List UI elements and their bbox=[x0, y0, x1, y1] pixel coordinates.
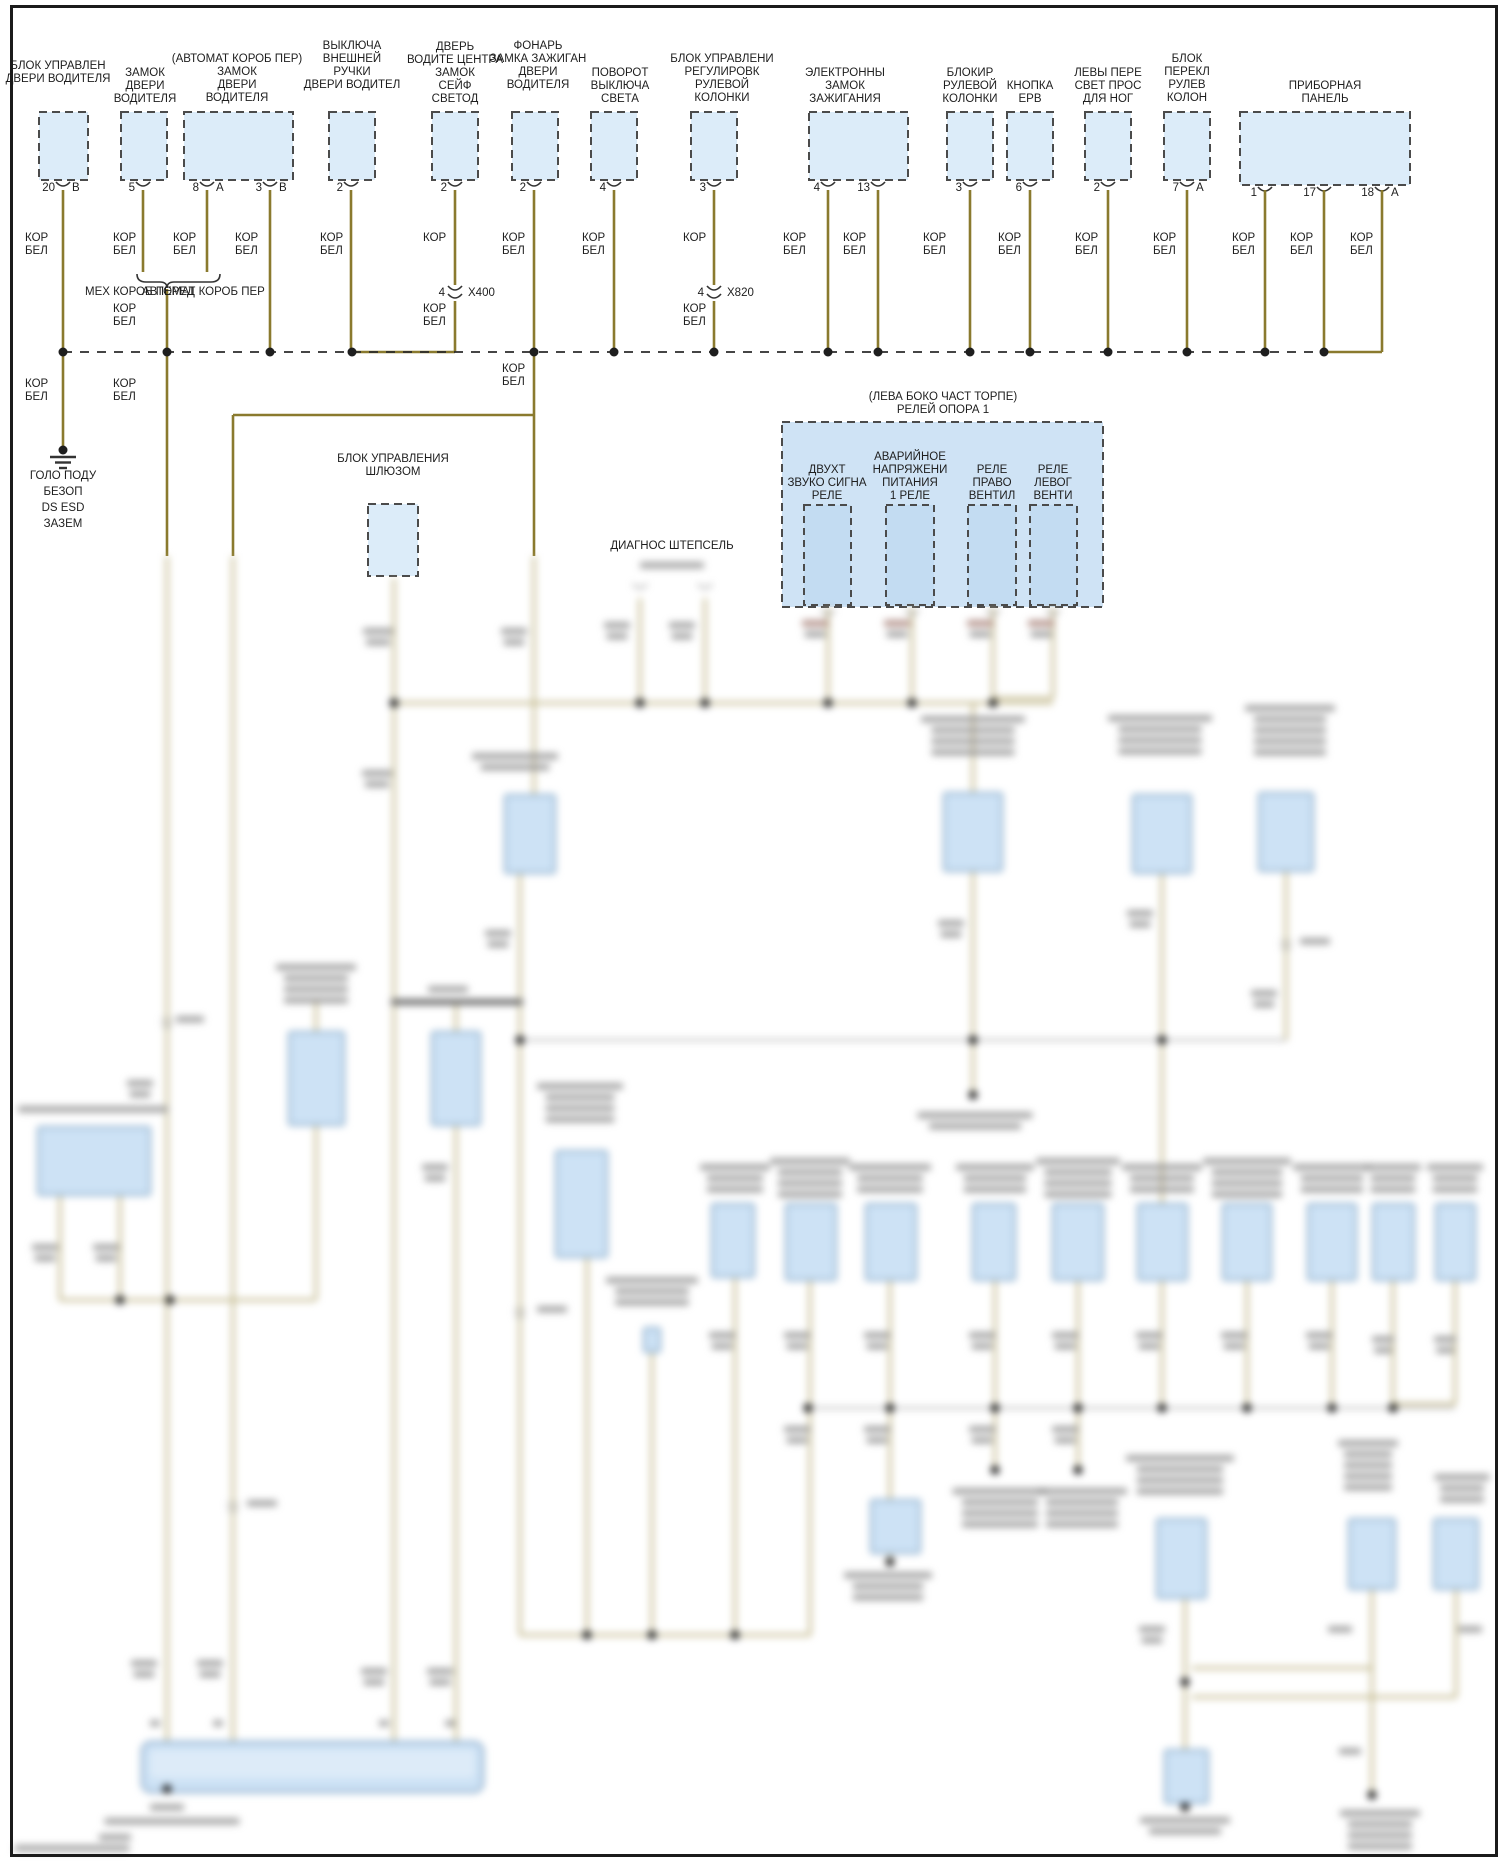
wire-color-label: КОР БЕЛ bbox=[25, 378, 48, 404]
blurred-text-blob bbox=[501, 628, 527, 635]
block-label-ignition-lock-lamp: ФОНАРЬ ЗАМКА ЗАЖИГАН ДВЕРИ ВОДИТЕЛЯ bbox=[490, 40, 587, 92]
pin-number: 1 bbox=[1251, 187, 1257, 200]
blurred-text-blob bbox=[1044, 1169, 1111, 1176]
blurred-text-blob bbox=[1458, 1626, 1482, 1633]
blurred-text-blob bbox=[1137, 1477, 1223, 1484]
blurred-text-blob bbox=[1427, 1164, 1483, 1171]
wire-color-label: КОР БЕЛ bbox=[423, 303, 446, 329]
blurred-text-blob bbox=[969, 1426, 995, 1433]
blurred-text-blob bbox=[938, 920, 964, 927]
blurred-text-blob bbox=[1309, 1343, 1330, 1350]
blurred-text-blob bbox=[770, 1158, 850, 1165]
blurred-component-box bbox=[1157, 1519, 1206, 1598]
blurred-text-blob bbox=[1293, 1164, 1371, 1171]
blurred-text-blob bbox=[1338, 1440, 1398, 1447]
blurred-text-blob bbox=[964, 1186, 1026, 1193]
blurred-text-blob bbox=[197, 1660, 223, 1667]
blurred-text-blob bbox=[1254, 716, 1326, 723]
blurred-component-box bbox=[505, 795, 555, 873]
pin-letter: A bbox=[1391, 187, 1399, 200]
blurred-text-blob bbox=[784, 1426, 810, 1433]
blurred-text-blob bbox=[546, 1105, 615, 1112]
pin-letter: B bbox=[72, 182, 80, 195]
blurred-text-blob bbox=[853, 1583, 923, 1590]
blurred-text-blob bbox=[1140, 1817, 1230, 1824]
relay-label-right-fan-relay: РЕЛЕ ПРАВО ВЕНТИЛ bbox=[969, 464, 1015, 503]
pin-letter: A bbox=[216, 182, 224, 195]
blurred-component-box bbox=[1308, 1204, 1356, 1280]
blurred-text-blob bbox=[134, 1671, 155, 1678]
pin-number: 8 bbox=[193, 182, 199, 195]
blurred-text-blob bbox=[1344, 1451, 1392, 1458]
blurred-text-blob bbox=[276, 964, 356, 971]
blurred-text-blob bbox=[1212, 1169, 1282, 1176]
blurred-text-blob bbox=[363, 628, 393, 635]
blurred-text-blob bbox=[707, 1175, 763, 1182]
blurred-text-blob bbox=[1372, 1336, 1394, 1343]
wire-color-label: КОР БЕЛ bbox=[1232, 232, 1255, 258]
block-label-steering-column-adjust-unit: БЛОК УПРАВЛЕНИ РЕГУЛИРОВК РУЛЕВОЙ КОЛОНК… bbox=[670, 53, 773, 105]
blurred-text-blob bbox=[1130, 921, 1151, 928]
blurred-text-blob bbox=[1118, 748, 1201, 755]
blurred-text-blob bbox=[1031, 631, 1052, 638]
blurred-text-blob bbox=[669, 622, 695, 629]
blurred-text-blob bbox=[615, 1288, 689, 1295]
wire-color-label: КОР bbox=[683, 232, 706, 245]
pin-number: 2 bbox=[441, 182, 447, 195]
blurred-text-blob bbox=[972, 1437, 993, 1444]
blurred-text-blob bbox=[931, 738, 1014, 745]
blurred-component-box bbox=[1133, 795, 1191, 873]
blurred-text-blob bbox=[1348, 1843, 1412, 1850]
blurred-text-blob bbox=[1224, 1343, 1245, 1350]
blurred-text-blob bbox=[1130, 1175, 1194, 1182]
blurred-text-blob bbox=[931, 727, 1014, 734]
wire-color-label: КОР БЕЛ bbox=[235, 232, 258, 258]
pin-number: 5 bbox=[129, 182, 135, 195]
blurred-text-blob bbox=[200, 1671, 221, 1678]
blurred-text-blob bbox=[150, 1720, 160, 1727]
blurred-text-blob bbox=[967, 620, 993, 627]
blurred-text-blob bbox=[1365, 1164, 1421, 1171]
blurred-text-blob bbox=[802, 620, 828, 627]
blurred-text-blob bbox=[1221, 1332, 1247, 1339]
blurred-component-box bbox=[1434, 1519, 1478, 1589]
block-label-electronic-ignition-lock: ЭЛЕКТРОННЫ ЗАМОК ЗАЖИГАНИЯ bbox=[805, 67, 885, 106]
blurred-text-blob bbox=[131, 1660, 157, 1667]
blurred-text-blob bbox=[604, 622, 630, 629]
blurred-text-blob bbox=[1254, 1001, 1275, 1008]
wire-color-label: КОР БЕЛ bbox=[113, 303, 136, 329]
blurred-text-blob bbox=[361, 1668, 387, 1675]
wire-color-label: КОР БЕЛ bbox=[502, 363, 525, 389]
pin-number: 20 bbox=[42, 182, 55, 195]
blurred-text-blob bbox=[1108, 715, 1212, 722]
blurred-text-blob bbox=[1301, 1175, 1363, 1182]
wire-color-label: КОР БЕЛ bbox=[113, 378, 136, 404]
blurred-text-blob bbox=[1044, 1191, 1111, 1198]
blurred-component-box bbox=[38, 1127, 150, 1195]
blurred-text-blob bbox=[1052, 1332, 1078, 1339]
connector-pin: 4 bbox=[439, 287, 445, 300]
blurred-text-blob bbox=[1440, 1485, 1484, 1492]
blurred-component-box bbox=[1053, 1204, 1103, 1280]
blurred-component-box bbox=[1165, 1750, 1208, 1803]
pin-letter: B bbox=[279, 182, 287, 195]
blurred-text-blob bbox=[430, 1679, 451, 1686]
blurred-text-blob bbox=[844, 1572, 932, 1579]
wire-color-label: КОР БЕЛ bbox=[1350, 232, 1373, 258]
blurred-text-blob bbox=[504, 639, 525, 646]
blurred-component-box bbox=[871, 1500, 920, 1553]
blurred-text-blob bbox=[481, 764, 550, 771]
block-label-driver-door-lock: ЗАМОК ДВЕРИ ВОДИТЕЛЯ bbox=[114, 67, 177, 106]
pin-letter: A bbox=[1196, 182, 1204, 195]
wire-color-label: КОР БЕЛ bbox=[582, 232, 605, 258]
blurred-text-blob bbox=[1142, 1637, 1163, 1644]
blurred-component-box bbox=[556, 1151, 607, 1257]
wire-color-label: КОР БЕЛ bbox=[1290, 232, 1313, 258]
diagnostic-plug-label: ДИАГНОС ШТЕПСЕЛЬ bbox=[610, 540, 733, 553]
blurred-text-blob bbox=[1212, 1180, 1282, 1187]
relay-label-left-fan-relay: РЕЛЕ ЛЕВОГ ВЕНТИ bbox=[1034, 464, 1073, 503]
blurred-text-blob bbox=[422, 1164, 448, 1171]
blurred-text-blob bbox=[1036, 1158, 1120, 1165]
blurred-text-blob bbox=[127, 1080, 153, 1087]
blurred-text-blob bbox=[1340, 1810, 1420, 1817]
blurred-component-box bbox=[712, 1204, 754, 1277]
blurred-text-blob bbox=[1434, 1336, 1456, 1343]
block-label-left-front-footwell-light: ЛЕВЫ ПЕРЕ СВЕТ ПРОС ДЛЯ НОГ bbox=[1074, 67, 1142, 106]
blurred-text-blob bbox=[1149, 1828, 1221, 1835]
wiring-diagram-page: БЛОК УПРАВЛЕН ДВЕРИ ВОДИТЕЛЯ20BЗАМОК ДВЕ… bbox=[0, 0, 1500, 1861]
blurred-text-blob bbox=[1440, 1496, 1484, 1503]
block-label-instrument-panel: ПРИБОРНАЯ ПАНЕЛЬ bbox=[1289, 80, 1362, 106]
blurred-text-blob bbox=[867, 1437, 888, 1444]
gateway-label: БЛОК УПРАВЛЕНИЯ ШЛЮЗОМ bbox=[337, 453, 449, 479]
blurred-text-blob bbox=[546, 1094, 615, 1101]
blurred-text-blob bbox=[1371, 1186, 1416, 1193]
blurred-text-blob bbox=[428, 986, 468, 993]
blurred-text-blob bbox=[864, 1332, 890, 1339]
blurred-text-blob bbox=[1436, 1347, 1454, 1354]
pin-number: 4 bbox=[600, 182, 606, 195]
blurred-text-blob bbox=[365, 781, 389, 788]
blurred-text-blob bbox=[1374, 1347, 1392, 1354]
blurred-text-blob bbox=[176, 1016, 204, 1023]
blurred-text-blob bbox=[931, 749, 1014, 756]
wire-color-label: КОР БЕЛ bbox=[843, 232, 866, 258]
blurred-text-blob bbox=[1254, 749, 1326, 756]
block-label-steering-column-switch-unit: БЛОК ПЕРЕКЛ РУЛЕВ КОЛОН bbox=[1164, 53, 1210, 105]
blurred-text-blob bbox=[1052, 1426, 1078, 1433]
blurred-text-blob bbox=[778, 1191, 842, 1198]
blurred-text-blob bbox=[1046, 1521, 1118, 1528]
blurred-text-blob bbox=[1371, 1175, 1416, 1182]
blurred-text-blob bbox=[1118, 737, 1201, 744]
blurred-text-blob bbox=[853, 1594, 923, 1601]
blurred-text-blob bbox=[857, 1186, 923, 1193]
blurred-text-blob bbox=[130, 1091, 151, 1098]
blurred-text-blob bbox=[96, 1255, 117, 1262]
relay-panel-title: (ЛЕВА БОКО ЧАСТ ТОРПЕ) РЕЛЕЙ ОПОРА 1 bbox=[869, 391, 1017, 417]
blurred-component-box bbox=[1259, 793, 1313, 871]
blurred-text-blob bbox=[712, 1343, 733, 1350]
blurred-text-blob bbox=[953, 1488, 1048, 1495]
blurred-text-blob bbox=[1028, 620, 1054, 627]
blurred-text-blob bbox=[962, 1499, 1038, 1506]
blurred-text-blob bbox=[1339, 1748, 1361, 1755]
gearbox-label: АВТОМАТ КОРОБ ПЕР bbox=[142, 286, 265, 299]
blurred-text-blob bbox=[1122, 1164, 1202, 1171]
blurred-text-blob bbox=[284, 986, 348, 993]
blurred-text-blob bbox=[1044, 1180, 1111, 1187]
block-label-door-driver-control-unit: БЛОК УПРАВЛЕН ДВЕРИ ВОДИТЕЛЯ bbox=[6, 60, 111, 86]
blurred-text-blob bbox=[1127, 910, 1153, 917]
blurred-text-blob bbox=[784, 1332, 810, 1339]
blurred-text-blob bbox=[607, 633, 628, 640]
pin-number: 18 bbox=[1361, 187, 1374, 200]
blurred-text-blob bbox=[99, 1834, 131, 1841]
wire-color-label: КОР БЕЛ bbox=[502, 232, 525, 258]
blurred-text-blob bbox=[707, 1186, 763, 1193]
blurred-text-blob bbox=[445, 1720, 455, 1727]
blurred-text-blob bbox=[546, 1116, 615, 1123]
blurred-text-blob bbox=[941, 931, 962, 938]
blurred-text-blob bbox=[1046, 1499, 1118, 1506]
blurred-text-blob bbox=[787, 1437, 808, 1444]
connector-name-X400: X400 bbox=[468, 287, 495, 300]
blurred-text-blob bbox=[956, 1164, 1034, 1171]
pin-number: 3 bbox=[700, 182, 706, 195]
blurred-text-blob bbox=[709, 1332, 735, 1339]
relay-label-two-tone-horn-relay: ДВУХТ ЗВУКО СИГНА РЕЛЕ bbox=[787, 464, 866, 503]
blurred-text-blob bbox=[284, 997, 348, 1004]
wire-color-label: КОР БЕЛ bbox=[1153, 232, 1176, 258]
blurred-text-blob bbox=[1137, 1466, 1223, 1473]
wire-color-label: КОР БЕЛ bbox=[320, 232, 343, 258]
blurred-component-box bbox=[432, 1032, 480, 1125]
blurred-text-blob bbox=[1344, 1484, 1392, 1491]
blurred-text-blob bbox=[425, 1175, 446, 1182]
connector-pin: 4 bbox=[698, 287, 704, 300]
blurred-text-blob bbox=[1254, 727, 1326, 734]
ground-label: ГОЛО ПОДУ БЕЗОП DS ESD ЗАЗЕМ bbox=[30, 468, 96, 532]
block-label-light-turn-switch: ПОВОРОТ ВЫКЛЮЧА СВЕТА bbox=[591, 67, 650, 106]
blurred-text-blob bbox=[537, 1083, 623, 1090]
blurred-text-blob bbox=[962, 1521, 1038, 1528]
block-label-driver-door-lock-at: (АВТОМАТ КОРОБ ПЕР) ЗАМОК ДВЕРИ ВОДИТЕЛЯ bbox=[172, 53, 302, 105]
block-label-driver-door-central-lock-led: ДВЕРЬ ВОДИТЕ ЦЕНТРА ЗАМОК СЕЙФ СВЕТОД bbox=[407, 41, 503, 106]
blurred-text-blob bbox=[778, 1180, 842, 1187]
relay-label-emergency-power-1-relay: АВАРИЙНОЕ НАПРЯЖЕНИ ПИТАНИЯ 1 РЕЛЕ bbox=[873, 451, 948, 503]
blurred-component-box bbox=[1223, 1204, 1271, 1280]
blurred-text-blob bbox=[887, 631, 908, 638]
blurred-component-box bbox=[1349, 1519, 1395, 1589]
blurred-text-blob bbox=[969, 1332, 995, 1339]
pin-number: 2 bbox=[520, 182, 526, 195]
pin-number: 6 bbox=[1016, 182, 1022, 195]
pin-number: 2 bbox=[337, 182, 343, 195]
blurred-text-blob bbox=[105, 1818, 240, 1825]
blurred-text-blob bbox=[921, 716, 1025, 723]
blurred-text-blob bbox=[1055, 1343, 1076, 1350]
blurred-text-blob bbox=[284, 975, 348, 982]
blurred-text-blob bbox=[867, 1343, 888, 1350]
blurred-text-blob bbox=[1254, 738, 1326, 745]
blurred-text-blob bbox=[18, 1106, 168, 1113]
blurred-component-box bbox=[973, 1204, 1015, 1280]
blurred-text-blob bbox=[488, 941, 509, 948]
blurred-text-blob bbox=[379, 1720, 389, 1727]
blurred-text-blob bbox=[1348, 1821, 1412, 1828]
blurred-text-blob bbox=[1203, 1158, 1291, 1165]
wire-color-label: КОР БЕЛ bbox=[998, 232, 1021, 258]
blurred-text-blob bbox=[150, 1804, 184, 1811]
blurred-text-blob bbox=[472, 753, 558, 760]
pin-number: 17 bbox=[1303, 187, 1316, 200]
pin-number: 3 bbox=[956, 182, 962, 195]
blurred-text-blob bbox=[213, 1720, 223, 1727]
blurred-text-blob bbox=[1139, 1626, 1165, 1633]
blurred-text-blob bbox=[918, 1112, 1033, 1119]
blurred-text-blob bbox=[1130, 1186, 1194, 1193]
wire-color-label: КОР БЕЛ bbox=[113, 232, 136, 258]
blurred-text-blob bbox=[1344, 1462, 1392, 1469]
blurred-text-blob bbox=[857, 1175, 923, 1182]
blurred-text-blob bbox=[805, 631, 826, 638]
blurred-component-box bbox=[866, 1204, 916, 1280]
blurred-text-blob bbox=[672, 633, 693, 640]
blurred-text-blob bbox=[1137, 1488, 1223, 1495]
blurred-text-blob bbox=[485, 930, 511, 937]
blurred-text-blob bbox=[1118, 726, 1201, 733]
blurred-text-blob bbox=[1055, 1437, 1076, 1444]
block-label-steering-column-lock: БЛОКИР РУЛЕВОЙ КОЛОНКИ bbox=[942, 67, 997, 106]
pin-number: 13 bbox=[857, 182, 870, 195]
blurred-text-blob bbox=[537, 1306, 567, 1313]
blurred-text-blob bbox=[970, 631, 991, 638]
blurred-text-blob bbox=[849, 1164, 931, 1171]
blurred-text-blob bbox=[787, 1343, 808, 1350]
blurred-text-blob bbox=[1251, 990, 1277, 997]
blurred-text-blob bbox=[1344, 1473, 1392, 1480]
blurred-text-blob bbox=[972, 1343, 993, 1350]
blurred-text-blob bbox=[32, 1244, 58, 1251]
blurred-text-blob bbox=[1245, 705, 1335, 712]
block-label-epb-button: КНОПКА ЕРВ bbox=[1007, 80, 1054, 106]
blurred-text-blob bbox=[864, 1426, 890, 1433]
pin-number: 2 bbox=[1094, 182, 1100, 195]
blurred-text-blob bbox=[615, 1299, 689, 1306]
blurred-text-blob bbox=[1300, 938, 1330, 945]
blurred-component-box bbox=[289, 1032, 344, 1125]
pin-number: 7 bbox=[1173, 182, 1179, 195]
blurred-text-blob bbox=[247, 1500, 277, 1507]
blurred-text-blob bbox=[1433, 1186, 1478, 1193]
blurred-text-blob bbox=[1126, 1455, 1234, 1462]
wire-color-label: КОР БЕЛ bbox=[783, 232, 806, 258]
blurred-component-box bbox=[1373, 1204, 1414, 1280]
blurred-text-blob bbox=[427, 1668, 453, 1675]
blurred-text-blob bbox=[93, 1244, 119, 1251]
wire-color-label: КОР БЕЛ bbox=[923, 232, 946, 258]
wire-color-label: КОР БЕЛ bbox=[683, 303, 706, 329]
wire-color-label: КОР БЕЛ bbox=[173, 232, 196, 258]
blurred-text-blob bbox=[962, 1510, 1038, 1517]
blurred-text-blob bbox=[1212, 1191, 1282, 1198]
blurred-text-blob bbox=[1433, 1175, 1478, 1182]
blurred-text-blob bbox=[929, 1123, 1021, 1130]
wire-color-label: КОР БЕЛ bbox=[1075, 232, 1098, 258]
blurred-text-blob bbox=[15, 1845, 130, 1852]
blurred-text-blob bbox=[884, 620, 910, 627]
blurred-component-box bbox=[1138, 1204, 1187, 1280]
blurred-text-blob bbox=[1328, 1626, 1352, 1633]
blurred-text-blob bbox=[1306, 1332, 1332, 1339]
block-label-outer-handle-switch: ВЫКЛЮЧА ВНЕШНЕЙ РУЧКИ ДВЕРИ ВОДИТЕЛ bbox=[304, 40, 401, 92]
blurred-text-blob bbox=[964, 1175, 1026, 1182]
blurred-component-box bbox=[944, 793, 1002, 871]
blurred-text-blob bbox=[1037, 1488, 1127, 1495]
blurred-text-blob bbox=[1301, 1186, 1363, 1193]
connector-name-X820: X820 bbox=[727, 287, 754, 300]
blurred-text-blob bbox=[1139, 1343, 1160, 1350]
pin-number: 4 bbox=[814, 182, 820, 195]
blurred-text-blob bbox=[1046, 1510, 1118, 1517]
blurred-component-box bbox=[786, 1204, 836, 1280]
blurred-text-blob bbox=[1348, 1832, 1412, 1839]
blurred-text-blob bbox=[35, 1255, 56, 1262]
wire-color-label: КОР bbox=[423, 232, 446, 245]
blurred-text-blob bbox=[606, 1277, 698, 1284]
blurred-text-blob bbox=[778, 1169, 842, 1176]
blurred-text-blob bbox=[362, 770, 392, 777]
blurred-text-blob bbox=[700, 1164, 770, 1171]
wire-color-label: КОР БЕЛ bbox=[25, 232, 48, 258]
blurred-wire-layer bbox=[0, 0, 1500, 1861]
blurred-text-blob bbox=[1435, 1474, 1490, 1481]
blurred-component-box bbox=[644, 1328, 660, 1352]
blurred-lower-diagram bbox=[0, 0, 1500, 1861]
blurred-text-blob bbox=[1136, 1332, 1162, 1339]
blurred-text-blob bbox=[640, 562, 704, 569]
blurred-component-box bbox=[1436, 1204, 1475, 1280]
blurred-text-blob bbox=[366, 639, 390, 646]
blurred-text-blob bbox=[364, 1679, 385, 1686]
pin-number: 3 bbox=[256, 182, 262, 195]
